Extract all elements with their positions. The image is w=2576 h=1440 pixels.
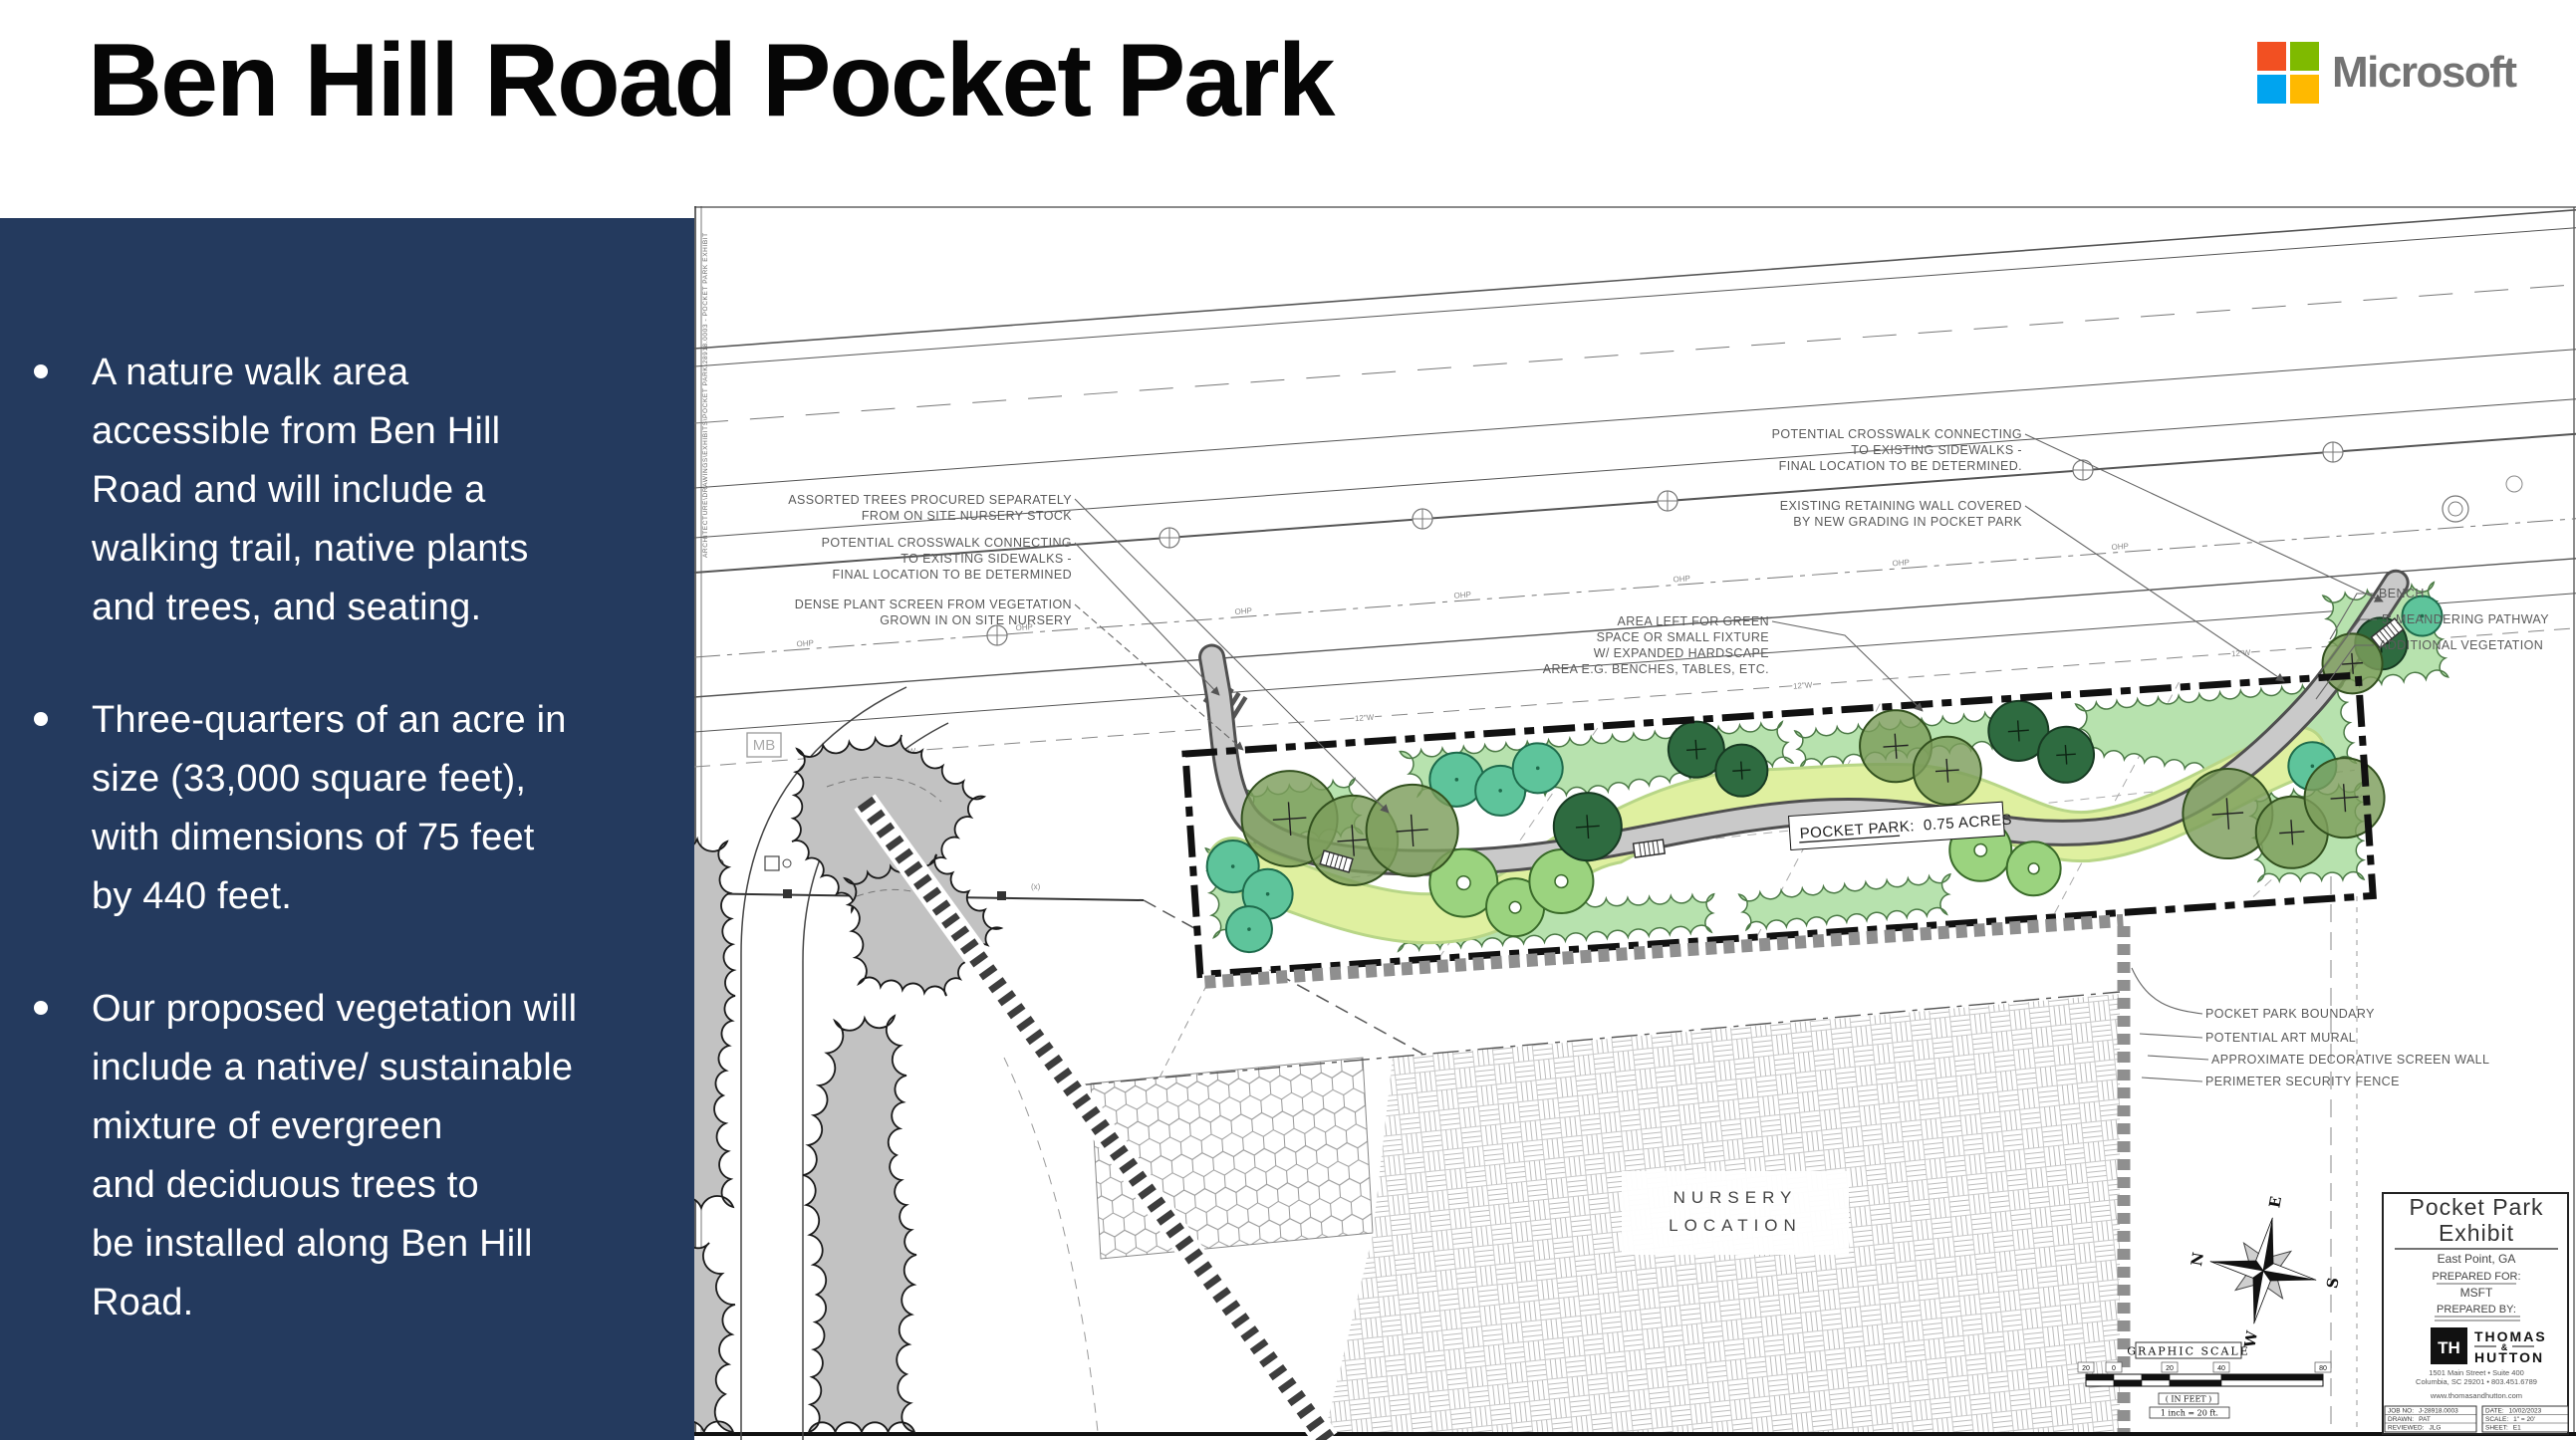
ohp-label: OHP: [1673, 574, 1690, 584]
ohp-label: OHP: [2111, 542, 2129, 552]
microsoft-logo-icon: [2257, 42, 2319, 104]
svg-text:THOMAS: THOMAS: [2474, 1328, 2547, 1344]
list-item: Three-quarters of an acre in size (33,00…: [24, 691, 664, 926]
bullet-text: Three-quarters of an acre in size (33,00…: [92, 691, 567, 926]
svg-text:Exhibit: Exhibit: [2439, 1220, 2514, 1246]
bullet-list: A nature walk area accessible from Ben H…: [0, 218, 694, 1332]
list-item: Our proposed vegetation will include a n…: [24, 980, 664, 1332]
firm-address-line2: Columbia, SC 29201 • 803.451.6789: [2416, 1377, 2537, 1386]
mailbox-label: MB: [753, 737, 776, 754]
svg-text:FROM ON SITE NURSERY STOCK: FROM ON SITE NURSERY STOCK: [862, 509, 1072, 523]
ms-square-yellow: [2290, 75, 2319, 104]
bullet-icon: [34, 1001, 48, 1015]
utility-pole-icon: [1413, 509, 1432, 529]
svg-text:BY NEW GRADING IN POCKET PARK: BY NEW GRADING IN POCKET PARK: [1793, 515, 2022, 529]
thomas-hutton-monogram: TH: [2438, 1338, 2460, 1357]
thomas-hutton-logo: TH THOMAS & HUTTON: [2431, 1327, 2547, 1365]
prepared-for-label: PREPARED FOR:: [2432, 1271, 2520, 1283]
list-item: A nature walk area accessible from Ben H…: [24, 344, 664, 637]
svg-text:W/ EXPANDED HARDSCAPE: W/ EXPANDED HARDSCAPE: [1594, 646, 1769, 660]
svg-text:TO EXISTING SIDEWALKS -: TO EXISTING SIDEWALKS -: [901, 552, 1072, 566]
nursery-label-line1: NURSERY: [1674, 1188, 1798, 1207]
waterline-label: 12"W: [1793, 680, 1813, 690]
utility-pole-icon: [1159, 528, 1179, 548]
date-row: DATE:10/02/2023: [2485, 1408, 2542, 1415]
callout-park-boundary: POCKET PARK BOUNDARY: [2205, 1007, 2375, 1021]
svg-text:HUTTON: HUTTON: [2474, 1349, 2544, 1365]
scale-tick-label: 80: [2319, 1365, 2327, 1372]
nursery-label-line2: LOCATION: [1669, 1216, 1802, 1235]
callout-assorted-trees: ASSORTED TREES PROCURED SEPARATELY: [788, 493, 1072, 507]
bullet-text: A nature walk area accessible from Ben H…: [92, 344, 529, 637]
microsoft-logo: Microsoft: [2257, 42, 2516, 104]
bench-icon: [1634, 840, 1666, 857]
ms-square-red: [2257, 42, 2286, 71]
site-plan-sheet: ARCHITECTURE\DRAWINGS\EXHIBITS\POCKET PA…: [694, 206, 2576, 1440]
sheet-row: SHEET:E1: [2485, 1425, 2521, 1432]
callout-screen-wall: APPROXIMATE DECORATIVE SCREEN WALL: [2211, 1053, 2489, 1067]
callout-dense-plant-screen: DENSE PLANT SCREEN FROM VEGETATION: [795, 598, 1072, 611]
callout-additional-vegetation: ADDITIONAL VEGETATION: [2379, 638, 2543, 652]
sidebar: A nature walk area accessible from Ben H…: [0, 218, 694, 1440]
nursery-label: NURSERY LOCATION: [1622, 1171, 1849, 1255]
ohp-label: OHP: [1234, 606, 1252, 616]
ms-square-blue: [2257, 75, 2286, 104]
callout-pathway: 5' MEANDERING PATHWAY: [2382, 612, 2549, 626]
callout-crosswalk-right: POTENTIAL CROSSWALK CONNECTING: [1772, 427, 2022, 441]
callout-bench: BENCH: [2379, 587, 2425, 600]
title-block: Pocket Park Exhibit East Point, GA PREPA…: [2383, 1193, 2568, 1434]
bullet-text: Our proposed vegetation will include a n…: [92, 980, 577, 1332]
utility-pole-icon: [2323, 442, 2343, 462]
microsoft-wordmark: Microsoft: [2332, 48, 2516, 98]
ohp-label: OHP: [1453, 591, 1471, 600]
svg-text:TO EXISTING SIDEWALKS -: TO EXISTING SIDEWALKS -: [1851, 443, 2022, 457]
scale-tick-label: 40: [2217, 1365, 2225, 1372]
prepared-by-label: PREPARED BY:: [2437, 1304, 2516, 1316]
reviewed-row: REVIEWED:JLG: [2388, 1425, 2441, 1432]
sheet-edge-filepath: ARCHITECTURE\DRAWINGS\EXHIBITS\POCKET PA…: [702, 232, 709, 558]
bullet-icon: [34, 364, 48, 378]
page-title: Ben Hill Road Pocket Park: [88, 22, 1333, 140]
bullet-icon: [34, 712, 48, 726]
ohp-label: OHP: [796, 638, 814, 648]
svg-text:FINAL LOCATION TO BE DETERMINE: FINAL LOCATION TO BE DETERMINED: [833, 568, 1072, 582]
fence-marker-label: (x): [1031, 882, 1041, 891]
titleblock-location: East Point, GA: [2438, 1252, 2516, 1266]
graphic-scale-title: GRAPHIC SCALE: [2127, 1345, 2250, 1358]
utility-pole-icon: [2073, 460, 2093, 480]
utility-pole-icon: [1658, 491, 1677, 511]
callout-security-fence: PERIMETER SECURITY FENCE: [2205, 1075, 2400, 1088]
svg-text:FINAL LOCATION TO BE DETERMINE: FINAL LOCATION TO BE DETERMINED.: [1779, 459, 2022, 473]
callout-retaining-wall: EXISTING RETAINING WALL COVERED: [1780, 499, 2022, 513]
svg-text:SPACE OR SMALL FIXTURE: SPACE OR SMALL FIXTURE: [1597, 630, 1769, 644]
scale-units-label: ( IN FEET ): [2166, 1395, 2212, 1404]
scale-tick-label: 0: [2112, 1365, 2116, 1372]
svg-text:AREA E.G. BENCHES, TABLES, ETC: AREA E.G. BENCHES, TABLES, ETC.: [1543, 662, 1769, 676]
waterline-label: 12"W: [1355, 713, 1375, 723]
utility-pole-icon: [987, 625, 1007, 645]
ohp-label: OHP: [1892, 558, 1910, 568]
titleblock-title: Pocket Park: [2410, 1194, 2544, 1220]
callout-crosswalk-left: POTENTIAL CROSSWALK CONNECTING: [822, 536, 1072, 550]
prepared-for-value: MSFT: [2460, 1286, 2493, 1300]
svg-text:GROWN IN ON SITE NURSERY: GROWN IN ON SITE NURSERY: [880, 613, 1072, 627]
scale-tick-label: 20: [2166, 1365, 2174, 1372]
firm-address-line1: 1501 Main Street • Suite 400: [2429, 1368, 2524, 1377]
callout-art-mural: POTENTIAL ART MURAL: [2205, 1031, 2356, 1045]
callout-green-space: AREA LEFT FOR GREEN: [1617, 614, 1769, 628]
ms-square-green: [2290, 42, 2319, 71]
scale-tick-label: 20: [2082, 1365, 2090, 1372]
drawn-row: DRAWN:PAT: [2388, 1416, 2431, 1423]
job-no-row: JOB NO:J-28918.0003: [2388, 1408, 2458, 1415]
scale-ratio-label: 1 inch = 20 ft.: [2161, 1409, 2218, 1418]
firm-website: www.thomasandhutton.com: [2430, 1391, 2522, 1400]
